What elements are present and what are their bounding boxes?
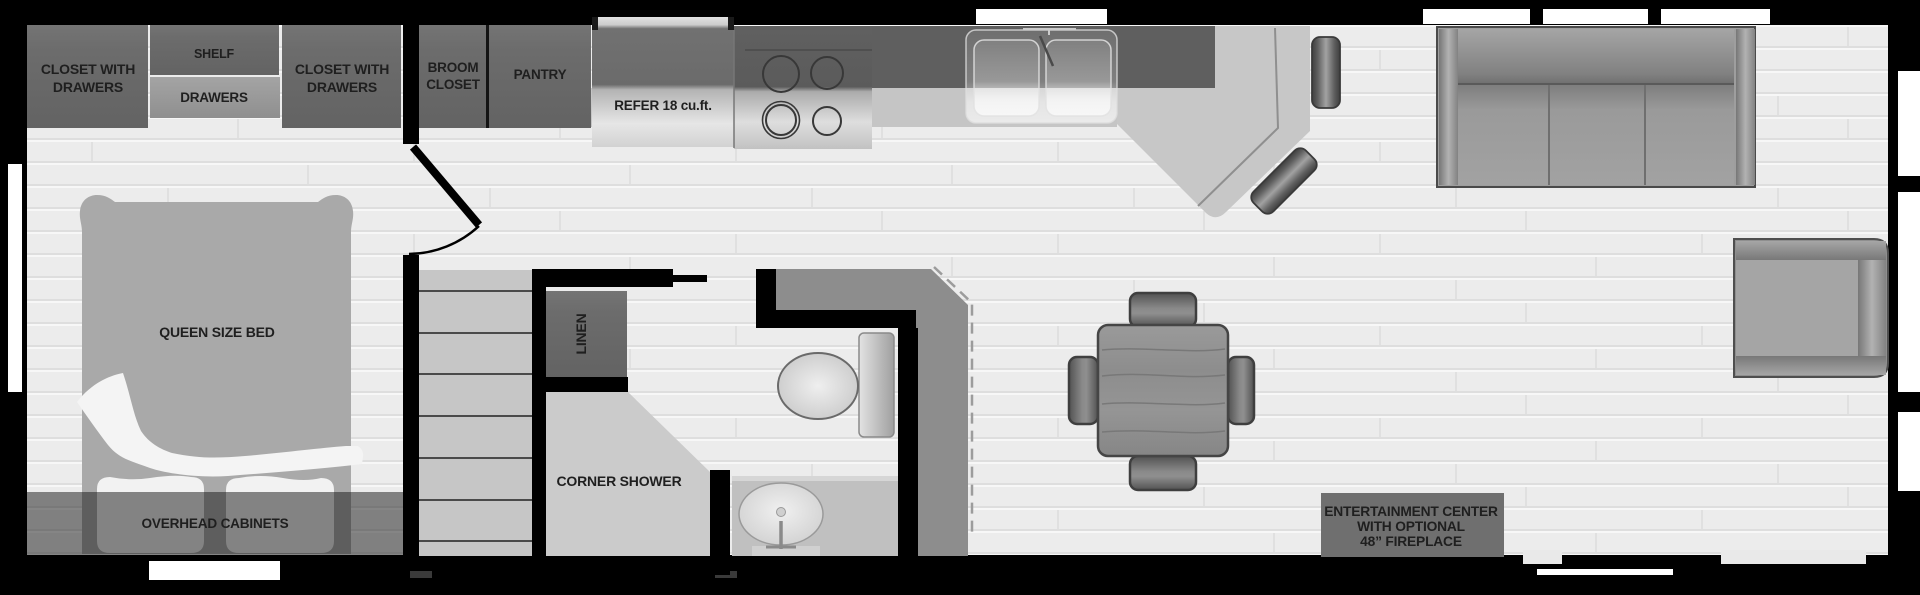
svg-text:SHELF: SHELF (194, 47, 235, 61)
svg-text:WITH OPTIONAL: WITH OPTIONAL (1357, 519, 1465, 534)
svg-text:ENTERTAINMENT CENTER: ENTERTAINMENT CENTER (1324, 504, 1498, 519)
svg-text:PANTRY: PANTRY (514, 67, 567, 82)
svg-text:LINEN: LINEN (573, 313, 589, 354)
svg-text:CLOSET WITH: CLOSET WITH (295, 61, 389, 77)
svg-text:REFER 18 cu.ft.: REFER 18 cu.ft. (614, 98, 712, 113)
svg-text:DRAWERS: DRAWERS (180, 90, 248, 105)
svg-text:DRAWERS: DRAWERS (307, 79, 377, 95)
svg-text:CLOSET: CLOSET (426, 77, 481, 92)
svg-text:DRAWERS: DRAWERS (53, 79, 123, 95)
svg-text:48” FIREPLACE: 48” FIREPLACE (1360, 534, 1462, 549)
svg-text:BROOM: BROOM (428, 60, 479, 75)
svg-text:CORNER SHOWER: CORNER SHOWER (557, 473, 682, 489)
svg-text:OVERHEAD CABINETS: OVERHEAD CABINETS (142, 516, 289, 531)
svg-text:QUEEN SIZE BED: QUEEN SIZE BED (159, 324, 275, 340)
svg-text:CLOSET WITH: CLOSET WITH (41, 61, 135, 77)
